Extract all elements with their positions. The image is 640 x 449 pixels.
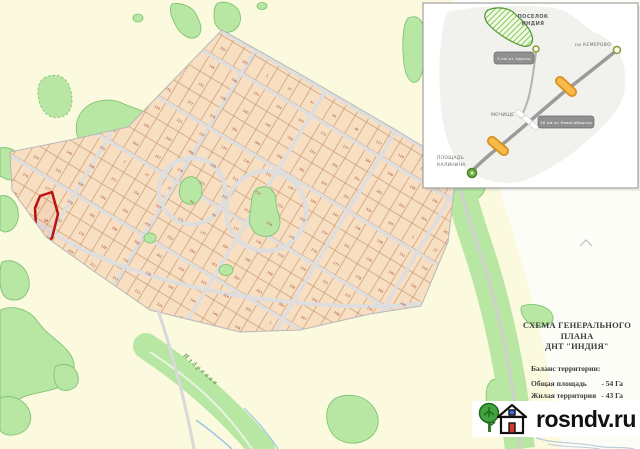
- legend-title-line2: ДНТ "ИНДИЯ": [514, 341, 640, 352]
- tree-icon: [480, 404, 499, 433]
- balance-label: Общая площадь: [531, 378, 587, 390]
- balance-row-residential: Жилая территория - 43 Га: [531, 390, 623, 402]
- inset-map: ПОСЕЛОК ИНДИЯ на КЕМЕРОВО МОЧИЩЕ ПЛОЩАДЬ…: [423, 3, 640, 191]
- scheme-screenshot: 1273744491171181191201211221261281311351…: [0, 0, 640, 449]
- kemerovo-label: на КЕМЕРОВО: [575, 42, 611, 48]
- legend-block: СХЕМА ГЕНЕРАЛЬНОГО ПЛАНА ДНТ "ИНДИЯ" Бал…: [514, 320, 640, 413]
- kalinina-label-line2: КАЛИНИНА: [437, 162, 466, 168]
- poselok-label-line1: ПОСЕЛОК: [518, 14, 549, 20]
- road-sign-bottom: 30 км от Новосибирска: [538, 116, 594, 128]
- balance-label: Жилая территория: [531, 390, 596, 402]
- balance-value: - 43 Га: [601, 390, 623, 402]
- house-icon: [498, 405, 526, 433]
- road-sign-top-text: 5 км от трассы: [497, 56, 530, 61]
- kalinina-marker-center: [471, 172, 474, 175]
- kemerovo-marker: [614, 47, 621, 54]
- highlighted-lot-number: 39: [44, 219, 48, 223]
- kalinina-label-line1: ПЛОЩАДЬ: [437, 155, 464, 161]
- road-sign-bottom-text: 30 км от Новосибирска: [540, 120, 592, 125]
- road-sign-top: 5 км от трассы: [494, 52, 534, 64]
- watermark-site-text: rosndv.ru: [536, 408, 636, 431]
- balance-heading: Баланс территории:: [531, 364, 623, 373]
- legend-title-line1: СХЕМА ГЕНЕРАЛЬНОГО ПЛАНА: [514, 320, 640, 341]
- mochishche-label: МОЧИЩЕ: [491, 112, 514, 118]
- balance-row-total: Общая площадь - 54 Га: [531, 378, 623, 390]
- poselok-label-line2: ИНДИЯ: [522, 21, 545, 27]
- rosndv-watermark[interactable]: rosndv.ru: [472, 401, 640, 437]
- junction-marker: [533, 46, 539, 52]
- rosndv-logo-icon: [476, 402, 532, 436]
- balance-value: - 54 Га: [601, 378, 623, 390]
